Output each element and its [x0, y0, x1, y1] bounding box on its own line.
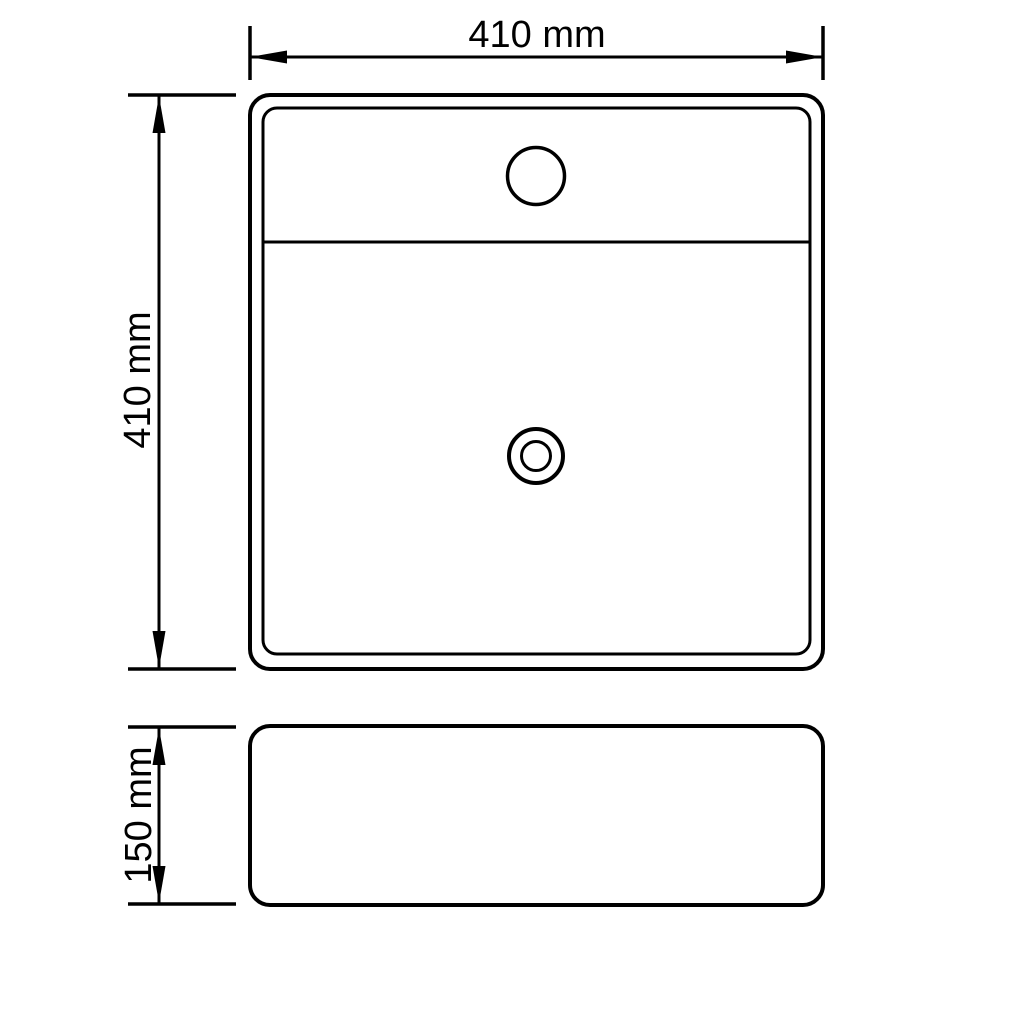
depth-dimension: 410 mm [117, 95, 236, 669]
height-dimension-label: 150 mm [118, 746, 160, 883]
basin-top-view [250, 95, 823, 669]
height-dimension: 150 mm [118, 727, 236, 904]
width-dimension-label: 410 mm [468, 14, 605, 56]
basin-dimension-drawing: 410 mm 410 mm 150 mm [0, 0, 1024, 1024]
faucet-hole [508, 148, 565, 205]
arrowhead-up [153, 96, 166, 133]
basin-front-view [250, 726, 823, 905]
basin-front-outline [250, 726, 823, 905]
arrowhead-right [786, 51, 823, 64]
depth-dimension-label: 410 mm [117, 311, 159, 448]
drain-hole-inner [522, 442, 551, 471]
basin-outer-edge [250, 95, 823, 669]
arrowhead-down [153, 631, 166, 668]
technical-drawing-canvas: 410 mm 410 mm 150 mm [0, 0, 1024, 1024]
basin-inner-rim [263, 108, 810, 654]
width-dimension: 410 mm [250, 14, 823, 80]
drain-hole-outer [509, 429, 563, 483]
arrowhead-left [250, 51, 287, 64]
